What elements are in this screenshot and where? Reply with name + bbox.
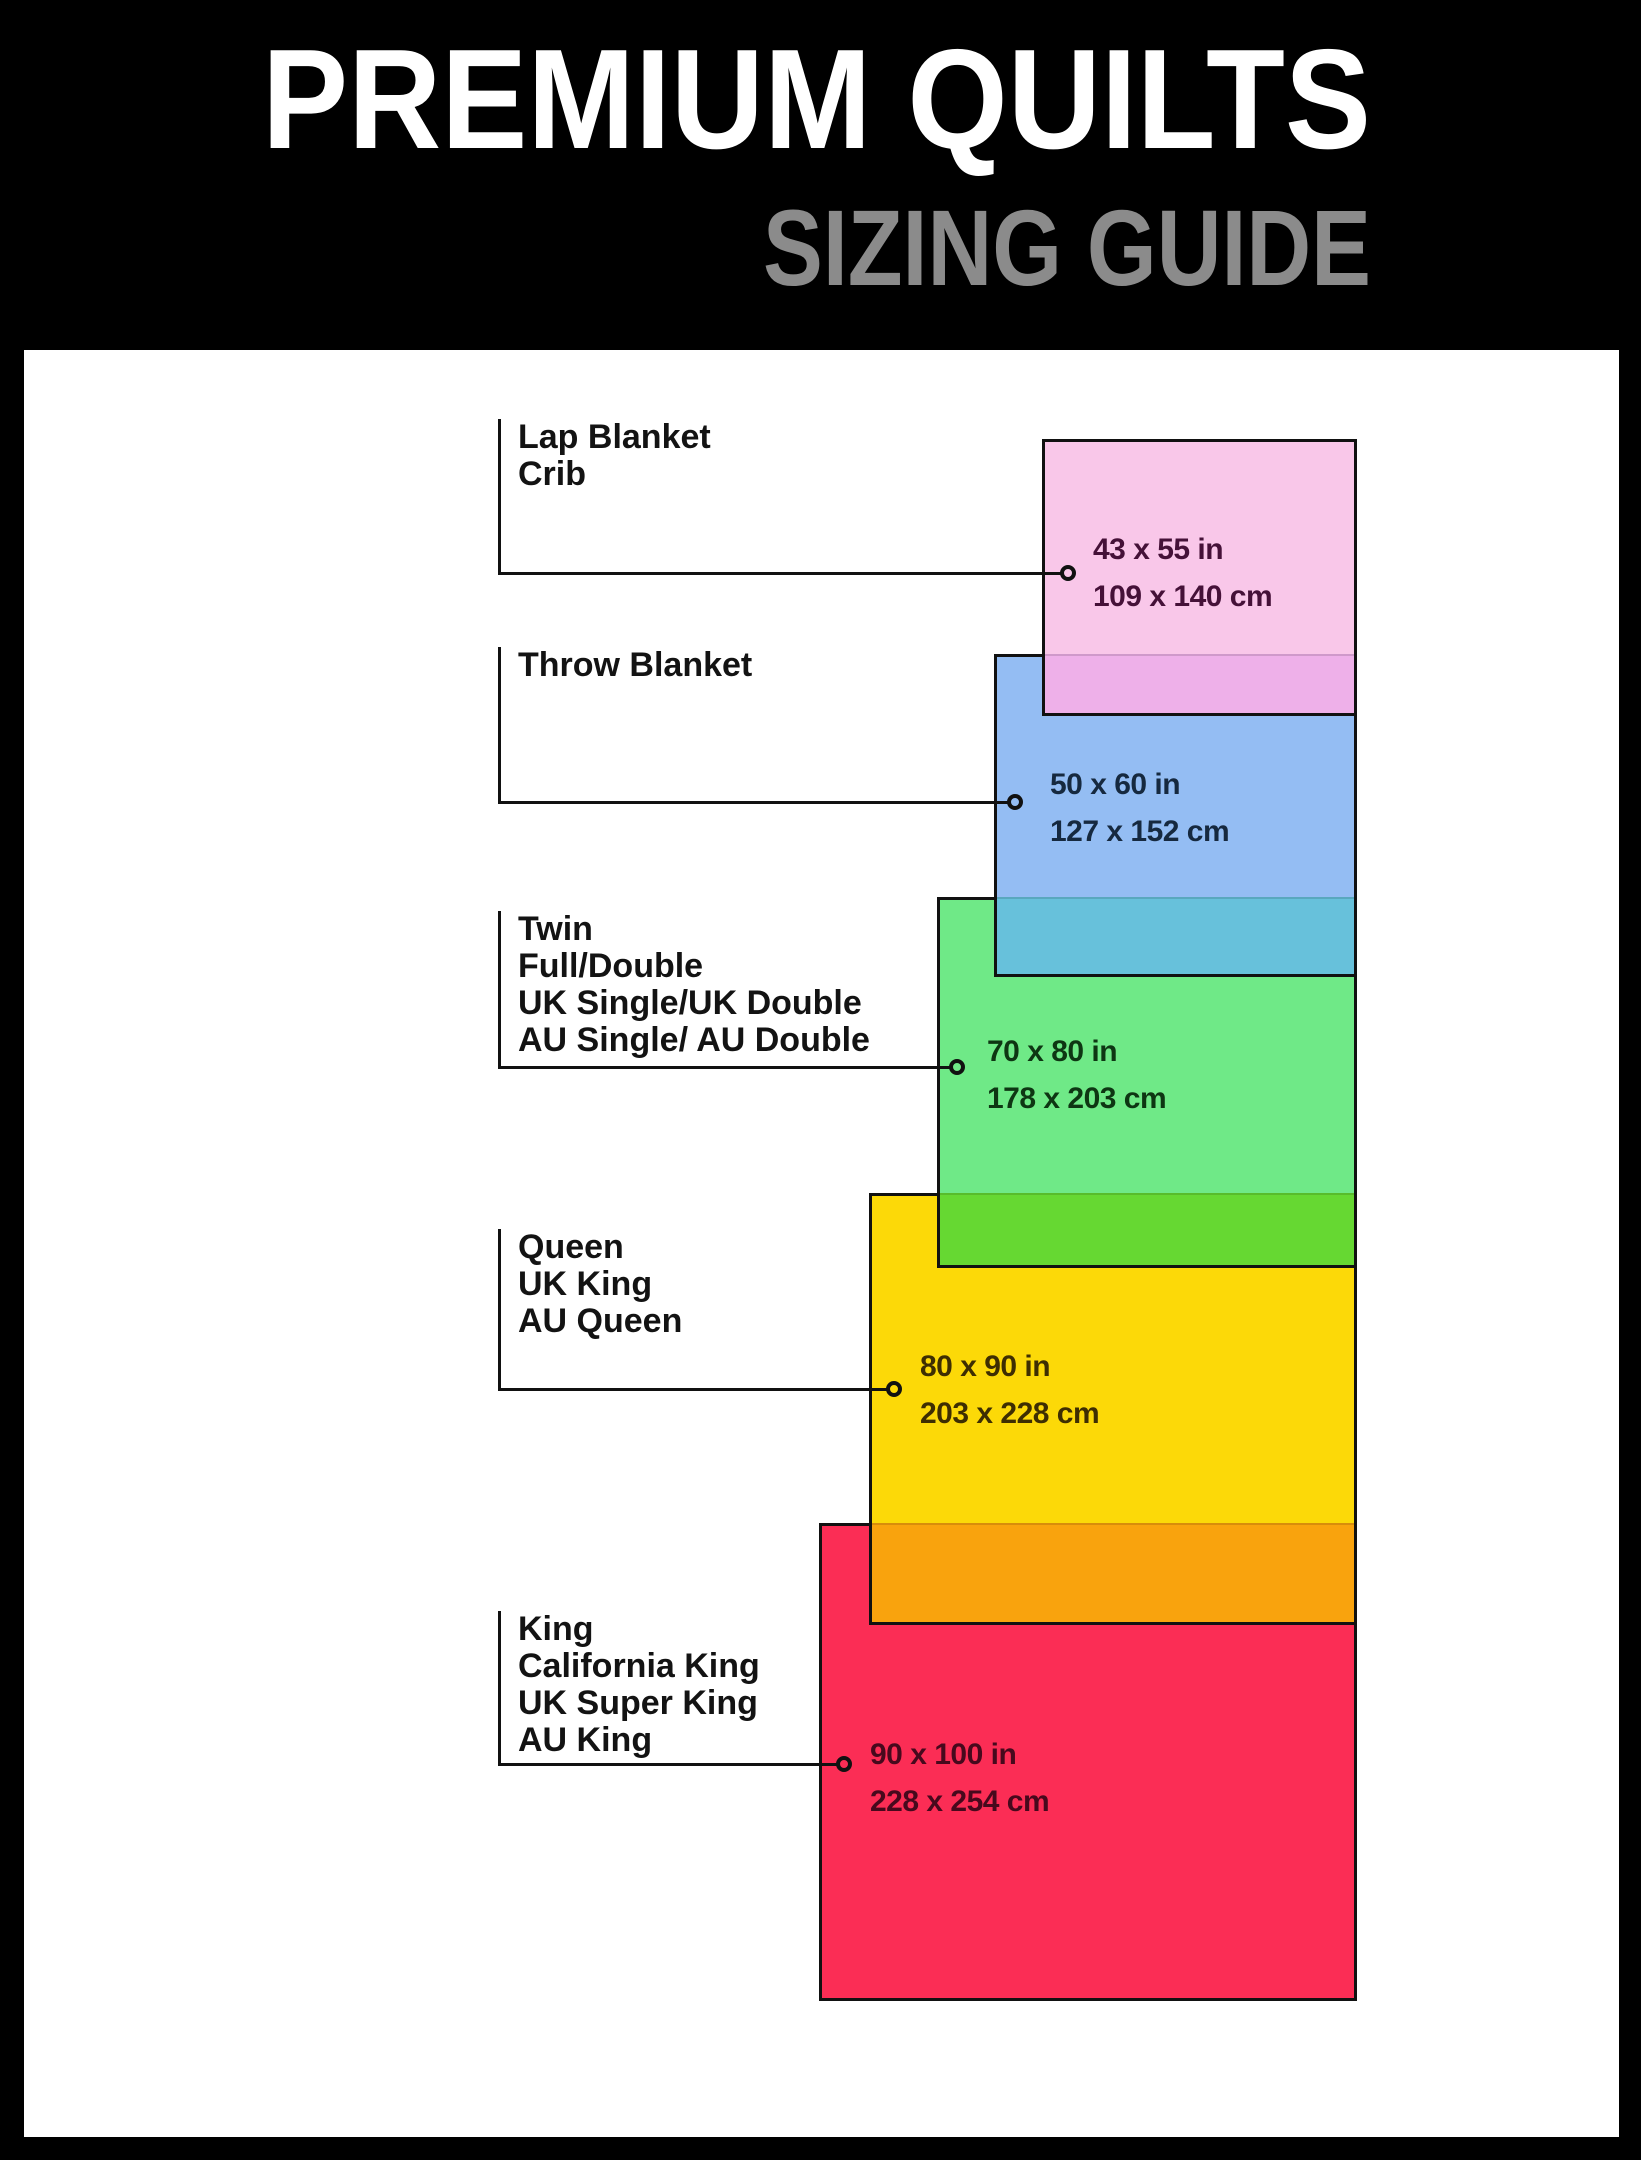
size-cm: 228 x 254 cm [870,1778,1049,1825]
header: PREMIUM QUILTS SIZING GUIDE [0,0,1641,350]
marker-dot-icon [1007,794,1023,810]
quilt-size-lap: 43 x 55 in 109 x 140 cm [1093,526,1272,620]
label-line: Lap Blanket [518,419,711,456]
size-inches: 90 x 100 in [870,1731,1049,1778]
label-line: UK Super King [518,1685,760,1722]
label-line: Crib [518,456,711,493]
label-line: AU King [518,1722,760,1759]
label-callout-queen: Queen UK King AU Queen [498,1229,682,1390]
marker-dot-icon [1060,565,1076,581]
label-callout-king: King California King UK Super King AU Ki… [498,1611,760,1765]
label-line: AU Single/ AU Double [518,1022,870,1059]
size-inches: 50 x 60 in [1050,761,1229,808]
quilt-overlap-band-twin-queen [940,1193,1354,1265]
label-line: Queen [518,1229,682,1266]
label-line: Throw Blanket [518,647,752,684]
size-inches: 80 x 90 in [920,1343,1099,1390]
size-cm: 109 x 140 cm [1093,573,1272,620]
label-line: AU Queen [518,1303,682,1340]
quilt-overlap-band-lap-throw [1045,654,1354,713]
label-line: Full/Double [518,948,870,985]
quilt-size-throw: 50 x 60 in 127 x 152 cm [1050,761,1229,855]
quilt-size-twin: 70 x 80 in 178 x 203 cm [987,1028,1166,1122]
marker-dot-icon [836,1756,852,1772]
quilt-overlap-band-queen-king [872,1523,1354,1622]
connector-line-lap [498,572,1061,575]
quilt-size-queen: 80 x 90 in 203 x 228 cm [920,1343,1099,1437]
size-cm: 178 x 203 cm [987,1075,1166,1122]
connector-line-queen [498,1388,887,1391]
label-callout-twin: Twin Full/Double UK Single/UK Double AU … [498,911,870,1068]
size-inches: 43 x 55 in [1093,526,1272,573]
connector-line-king [498,1763,837,1766]
label-line: King [518,1611,760,1648]
sizing-guide-page: PREMIUM QUILTS SIZING GUIDE 43 x 55 in 1… [0,0,1641,2160]
connector-line-twin [498,1066,950,1069]
quilt-size-king: 90 x 100 in 228 x 254 cm [870,1731,1049,1825]
label-callout-throw: Throw Blanket [498,647,752,803]
connector-line-throw [498,801,1008,804]
page-title: PREMIUM QUILTS [262,20,1371,179]
size-cm: 203 x 228 cm [920,1390,1099,1437]
label-line: UK King [518,1266,682,1303]
label-callout-lap: Lap Blanket Crib [498,419,711,574]
label-line: UK Single/UK Double [518,985,870,1022]
marker-dot-icon [949,1059,965,1075]
size-inches: 70 x 80 in [987,1028,1166,1075]
page-subtitle: SIZING GUIDE [763,187,1371,308]
size-cm: 127 x 152 cm [1050,808,1229,855]
label-line: California King [518,1648,760,1685]
quilt-overlap-band-throw-twin [997,897,1354,974]
label-line: Twin [518,911,870,948]
marker-dot-icon [886,1381,902,1397]
